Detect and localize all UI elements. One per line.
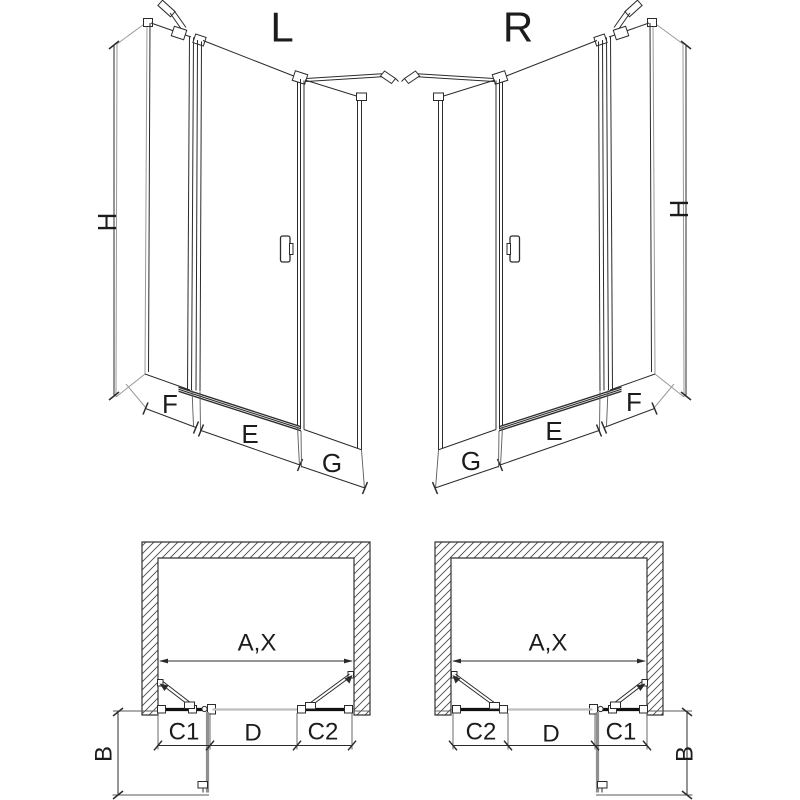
dim-label-c1-left: C1 — [169, 719, 200, 746]
dim-label-g-right: G — [461, 446, 481, 476]
dim-label-f-left: F — [162, 389, 178, 419]
dim-label-g-left: G — [322, 448, 342, 478]
dim-label-e-right: E — [545, 416, 562, 446]
dim-label-ax-right: A,X — [529, 630, 568, 657]
variant-label-right: R — [503, 4, 533, 51]
dim-label-c1-right: C1 — [606, 719, 637, 746]
diagram-canvas: L H F E G R H F E G A,X C1 D C2 B A,X C2… — [0, 0, 800, 800]
dim-label-e-left: E — [241, 419, 258, 449]
dim-label-f-right: F — [626, 387, 642, 417]
technical-drawing-page: L H F E G R H F E G A,X C1 D C2 B A,X C2… — [0, 0, 800, 800]
dim-label-c2-left: C2 — [308, 719, 339, 746]
dim-label-b-left: B — [91, 746, 118, 762]
dim-label-h-right: H — [664, 200, 694, 219]
variant-label-left: L — [270, 4, 293, 51]
plan-right-walls — [435, 542, 663, 715]
dim-label-d-left: D — [244, 720, 261, 747]
dim-label-c2-right: C2 — [466, 719, 497, 746]
dim-label-h-left: H — [92, 213, 122, 232]
plan-left-walls — [142, 542, 370, 715]
dim-label-d-right: D — [542, 721, 559, 748]
dim-label-b-right: B — [672, 746, 699, 762]
dim-label-ax-left: A,X — [238, 630, 277, 657]
